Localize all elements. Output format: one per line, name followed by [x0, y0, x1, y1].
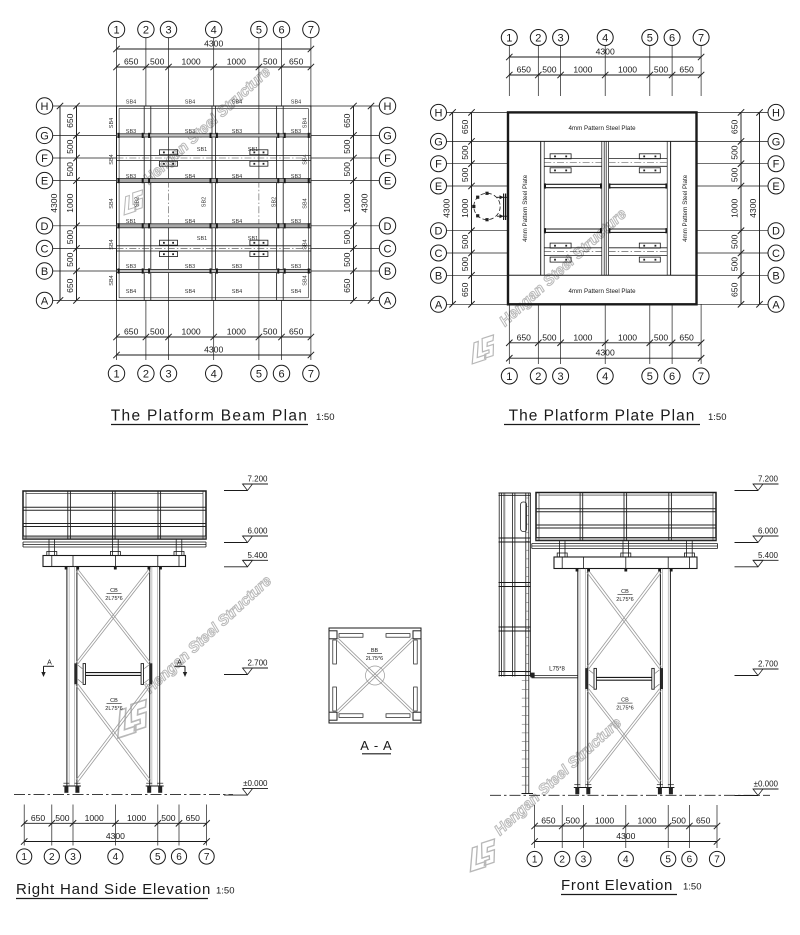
svg-text:SB4: SB4: [291, 100, 301, 106]
svg-text:500: 500: [342, 252, 352, 267]
svg-text:C: C: [772, 248, 780, 260]
svg-text:1000: 1000: [127, 813, 146, 823]
svg-text:500: 500: [263, 327, 278, 337]
svg-text:A: A: [772, 299, 780, 311]
svg-text:4: 4: [211, 25, 217, 37]
svg-text:A: A: [435, 299, 443, 311]
svg-text:7.200: 7.200: [758, 475, 779, 484]
svg-text:CB: CB: [621, 589, 629, 595]
svg-text:CB: CB: [110, 588, 118, 594]
svg-text:1000: 1000: [637, 816, 656, 826]
svg-text:SB1: SB1: [248, 236, 258, 242]
svg-text:SB4: SB4: [109, 118, 115, 128]
svg-text:SB2: SB2: [202, 197, 208, 207]
svg-text:650: 650: [289, 57, 304, 67]
svg-text:5: 5: [665, 855, 671, 866]
svg-text:D: D: [772, 226, 780, 238]
svg-text:4mm Pattern Steel Plate: 4mm Pattern Steel Plate: [522, 174, 529, 242]
svg-text:3: 3: [558, 33, 564, 45]
svg-text:1: 1: [506, 33, 512, 45]
svg-text:5: 5: [647, 33, 653, 45]
svg-text:The Platform Plate Plan: The Platform Plate Plan: [509, 408, 696, 425]
svg-text:2: 2: [559, 855, 565, 866]
svg-text:2: 2: [49, 852, 55, 863]
svg-text:500: 500: [150, 327, 165, 337]
svg-text:G: G: [772, 136, 781, 148]
svg-text:2L75*6: 2L75*6: [616, 597, 633, 603]
svg-text:500: 500: [730, 168, 740, 183]
svg-text:5: 5: [256, 369, 262, 381]
svg-text:650: 650: [124, 57, 139, 67]
svg-text:7: 7: [204, 852, 210, 863]
svg-text:4300: 4300: [596, 348, 615, 358]
svg-text:SB4: SB4: [302, 198, 308, 208]
svg-text:650: 650: [460, 120, 470, 135]
svg-text:Hengan Steel Structure: Hengan Steel Structure: [140, 63, 274, 188]
svg-text:L75*8: L75*8: [549, 667, 565, 673]
svg-text:SB4: SB4: [185, 289, 195, 295]
svg-text:SB4: SB4: [302, 118, 308, 128]
svg-text:6: 6: [176, 852, 182, 863]
svg-text:Hengan Steel Structure: Hengan Steel Structure: [141, 572, 275, 697]
svg-text:Front Elevation: Front Elevation: [561, 877, 673, 894]
svg-text:2: 2: [143, 25, 149, 37]
svg-text:D: D: [384, 221, 392, 233]
svg-text:SB4: SB4: [185, 219, 195, 225]
svg-text:SB4: SB4: [302, 239, 308, 249]
svg-text:SB3: SB3: [185, 264, 195, 270]
svg-text:1:50: 1:50: [316, 412, 335, 423]
svg-text:4: 4: [113, 852, 119, 863]
svg-text:4mm Pattern Steel Plate: 4mm Pattern Steel Plate: [568, 125, 636, 132]
svg-text:4mm Pattern Steel Plate: 4mm Pattern Steel Plate: [682, 174, 689, 242]
svg-text:2L75*6: 2L75*6: [616, 706, 633, 712]
svg-text:SB3: SB3: [291, 264, 301, 270]
svg-text:1:50: 1:50: [708, 412, 727, 423]
svg-text:6: 6: [278, 25, 284, 37]
svg-text:SB3: SB3: [232, 129, 242, 135]
svg-text:7.200: 7.200: [247, 475, 268, 484]
svg-text:SB4: SB4: [185, 174, 195, 180]
svg-text:4300: 4300: [442, 199, 452, 218]
svg-text:1: 1: [113, 25, 119, 37]
svg-text:2.700: 2.700: [758, 660, 779, 669]
svg-text:G: G: [40, 130, 49, 142]
svg-text:500: 500: [654, 332, 669, 342]
svg-text:650: 650: [730, 120, 740, 135]
svg-text:1000: 1000: [182, 57, 201, 67]
svg-text:E: E: [435, 181, 442, 193]
svg-text:650: 650: [679, 65, 694, 75]
svg-text:Right Hand Side Elevation: Right Hand Side Elevation: [16, 881, 211, 898]
svg-text:650: 650: [342, 113, 352, 128]
svg-text:500: 500: [460, 257, 470, 272]
svg-text:A: A: [47, 660, 52, 667]
svg-text:A - A: A - A: [360, 738, 392, 753]
svg-text:SB4: SB4: [302, 154, 308, 164]
svg-text:SB3: SB3: [291, 129, 301, 135]
svg-text:500: 500: [65, 252, 75, 267]
svg-text:Hengan Steel Structure: Hengan Steel Structure: [496, 205, 630, 330]
svg-text:5: 5: [647, 371, 653, 383]
svg-text:SB1: SB1: [248, 147, 258, 153]
svg-text:7: 7: [698, 33, 704, 45]
svg-text:1000: 1000: [618, 332, 637, 342]
svg-text:SB3: SB3: [126, 174, 136, 180]
svg-text:500: 500: [460, 234, 470, 249]
svg-text:6.000: 6.000: [758, 527, 779, 536]
svg-text:2: 2: [535, 371, 541, 383]
svg-text:SB3: SB3: [291, 174, 301, 180]
svg-text:500: 500: [55, 813, 70, 823]
svg-text:2: 2: [143, 369, 149, 381]
svg-text:SB4: SB4: [109, 239, 115, 249]
svg-text:H: H: [772, 107, 780, 119]
svg-text:1:50: 1:50: [216, 886, 235, 897]
svg-text:A: A: [177, 660, 182, 667]
svg-text:±0.000: ±0.000: [754, 780, 779, 789]
svg-text:1000: 1000: [460, 199, 470, 218]
svg-text:CB: CB: [110, 698, 118, 704]
svg-text:1000: 1000: [227, 57, 246, 67]
svg-text:1000: 1000: [85, 813, 104, 823]
svg-text:B: B: [435, 270, 442, 282]
svg-text:500: 500: [566, 816, 581, 826]
svg-text:6: 6: [669, 371, 675, 383]
svg-text:500: 500: [460, 168, 470, 183]
svg-text:4: 4: [602, 371, 608, 383]
svg-text:5.400: 5.400: [247, 551, 268, 560]
svg-text:F: F: [773, 159, 780, 171]
svg-text:1: 1: [113, 369, 119, 381]
svg-text:B: B: [384, 266, 391, 278]
svg-text:4300: 4300: [616, 831, 635, 841]
svg-text:500: 500: [460, 145, 470, 160]
svg-text:BB: BB: [371, 648, 379, 654]
svg-text:F: F: [41, 153, 48, 165]
svg-text:G: G: [383, 130, 392, 142]
svg-text:±0.000: ±0.000: [243, 779, 268, 788]
svg-text:500: 500: [65, 139, 75, 154]
svg-text:650: 650: [696, 816, 711, 826]
svg-text:3: 3: [165, 369, 171, 381]
svg-text:1: 1: [532, 855, 538, 866]
svg-text:4300: 4300: [360, 193, 370, 212]
svg-text:1000: 1000: [573, 332, 592, 342]
svg-text:4300: 4300: [204, 345, 223, 355]
svg-text:C: C: [435, 248, 443, 260]
svg-text:SB4: SB4: [109, 275, 115, 285]
svg-text:500: 500: [542, 65, 557, 75]
svg-text:SB3: SB3: [185, 129, 195, 135]
svg-text:F: F: [384, 153, 391, 165]
svg-text:650: 650: [289, 327, 304, 337]
svg-text:500: 500: [342, 139, 352, 154]
svg-text:SB3: SB3: [291, 219, 301, 225]
svg-text:SB2: SB2: [272, 197, 278, 207]
svg-text:1000: 1000: [227, 327, 246, 337]
svg-text:650: 650: [65, 278, 75, 293]
svg-text:500: 500: [65, 162, 75, 177]
svg-text:H: H: [41, 101, 49, 113]
svg-text:650: 650: [517, 332, 532, 342]
svg-text:A: A: [384, 295, 392, 307]
svg-text:500: 500: [672, 816, 687, 826]
svg-text:500: 500: [342, 162, 352, 177]
svg-text:4300: 4300: [596, 47, 615, 57]
svg-text:2: 2: [535, 33, 541, 45]
svg-text:650: 650: [186, 813, 201, 823]
svg-text:D: D: [435, 226, 443, 238]
svg-text:1000: 1000: [182, 327, 201, 337]
svg-text:650: 650: [517, 65, 532, 75]
svg-text:650: 650: [460, 282, 470, 297]
svg-text:5: 5: [155, 852, 161, 863]
svg-text:SB1: SB1: [197, 147, 207, 153]
svg-text:1:50: 1:50: [683, 882, 702, 893]
svg-text:SB3: SB3: [126, 129, 136, 135]
svg-text:3: 3: [165, 25, 171, 37]
svg-text:500: 500: [542, 332, 557, 342]
svg-text:650: 650: [730, 282, 740, 297]
svg-text:500: 500: [654, 65, 669, 75]
svg-text:500: 500: [730, 145, 740, 160]
svg-text:SB4: SB4: [291, 289, 301, 295]
svg-text:3: 3: [581, 855, 587, 866]
svg-text:SB4: SB4: [126, 100, 136, 106]
svg-text:SB4: SB4: [232, 100, 242, 106]
svg-text:SB3: SB3: [126, 264, 136, 270]
svg-text:SB4: SB4: [126, 289, 136, 295]
svg-text:C: C: [384, 243, 392, 255]
svg-text:B: B: [41, 266, 48, 278]
svg-text:SB4: SB4: [109, 154, 115, 164]
svg-text:4300: 4300: [204, 39, 223, 49]
svg-text:H: H: [435, 107, 443, 119]
svg-text:650: 650: [679, 332, 694, 342]
svg-text:SB4: SB4: [232, 289, 242, 295]
svg-text:4300: 4300: [106, 831, 125, 841]
svg-text:4: 4: [623, 855, 629, 866]
svg-text:4300: 4300: [748, 199, 758, 218]
svg-text:The Platform Beam Plan: The Platform Beam Plan: [111, 408, 308, 425]
svg-text:3: 3: [70, 852, 76, 863]
svg-text:650: 650: [124, 327, 139, 337]
svg-text:1000: 1000: [595, 816, 614, 826]
svg-text:500: 500: [161, 813, 176, 823]
svg-text:SB4: SB4: [185, 100, 195, 106]
svg-text:1000: 1000: [573, 65, 592, 75]
svg-text:1000: 1000: [65, 193, 75, 212]
svg-text:1: 1: [506, 371, 512, 383]
svg-text:SB4: SB4: [232, 174, 242, 180]
svg-text:E: E: [41, 176, 48, 188]
svg-text:650: 650: [65, 113, 75, 128]
svg-text:CB: CB: [621, 698, 629, 704]
svg-text:1: 1: [21, 852, 27, 863]
svg-text:500: 500: [65, 230, 75, 245]
svg-text:7: 7: [698, 371, 704, 383]
svg-text:E: E: [384, 176, 391, 188]
svg-text:500: 500: [730, 257, 740, 272]
svg-text:650: 650: [31, 813, 46, 823]
svg-text:A: A: [41, 295, 49, 307]
svg-text:500: 500: [150, 57, 165, 67]
svg-text:7: 7: [308, 369, 314, 381]
svg-text:500: 500: [342, 230, 352, 245]
svg-text:4300: 4300: [49, 193, 59, 212]
svg-text:2.700: 2.700: [247, 659, 268, 668]
svg-text:6: 6: [278, 369, 284, 381]
svg-text:C: C: [41, 243, 49, 255]
svg-text:SB4: SB4: [232, 219, 242, 225]
svg-text:D: D: [41, 221, 49, 233]
svg-text:3: 3: [558, 371, 564, 383]
svg-text:1000: 1000: [342, 193, 352, 212]
svg-text:6: 6: [669, 33, 675, 45]
svg-text:E: E: [772, 181, 779, 193]
svg-text:H: H: [384, 101, 392, 113]
svg-text:F: F: [435, 159, 442, 171]
svg-text:5: 5: [256, 25, 262, 37]
svg-text:2L75*6: 2L75*6: [105, 706, 122, 712]
svg-text:SB4: SB4: [302, 275, 308, 285]
svg-text:1000: 1000: [618, 65, 637, 75]
svg-text:500: 500: [263, 57, 278, 67]
svg-text:500: 500: [730, 234, 740, 249]
svg-text:5.400: 5.400: [758, 551, 779, 560]
svg-text:650: 650: [342, 278, 352, 293]
svg-text:SB4: SB4: [109, 198, 115, 208]
svg-text:650: 650: [541, 816, 556, 826]
svg-text:SB1: SB1: [197, 236, 207, 242]
svg-text:B: B: [772, 270, 779, 282]
svg-text:2L75*6: 2L75*6: [105, 596, 122, 602]
svg-text:7: 7: [308, 25, 314, 37]
svg-text:6: 6: [687, 855, 693, 866]
svg-text:6.000: 6.000: [247, 527, 268, 536]
svg-text:1000: 1000: [730, 199, 740, 218]
svg-text:SB1: SB1: [126, 219, 136, 225]
svg-text:7: 7: [714, 855, 720, 866]
svg-text:4mm Pattern Steel Plate: 4mm Pattern Steel Plate: [568, 288, 636, 295]
svg-text:2L75*6: 2L75*6: [366, 656, 383, 662]
svg-text:SB3: SB3: [232, 264, 242, 270]
svg-text:4: 4: [211, 369, 217, 381]
svg-text:4: 4: [602, 33, 608, 45]
svg-text:SB2: SB2: [135, 197, 141, 207]
svg-text:G: G: [434, 136, 443, 148]
